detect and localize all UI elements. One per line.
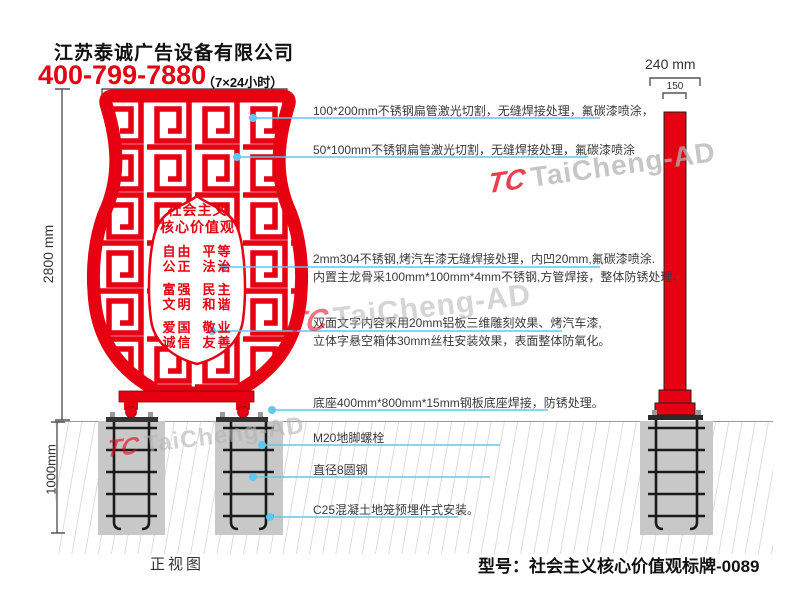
dim-150: 150 [663, 81, 687, 92]
sign-title-line1: 社会主义 [150, 202, 245, 219]
annotation-anchor-bolt: M20地脚螺栓 [313, 430, 384, 446]
phone-note: （7×24小时） [202, 72, 283, 91]
model-number: 型号：社会主义核心价值观标牌-0089 [478, 552, 759, 577]
annotation-mid-tube: 50*100mm不锈钢扁管激光切割，无缝焊接处理，氟碳漆喷涂 [313, 142, 635, 158]
annotation-steel-body-line2: 内置主龙骨采100mm*100mm*4mm不锈钢,方管焊接，整体防锈处理。 [313, 269, 684, 285]
vase-stand [119, 391, 254, 418]
phone-number: 400-799-7880 [38, 60, 206, 91]
sign-title-line2: 核心价值观 [150, 219, 245, 236]
core-values: 自由平等 公正法治 富强民主 文明和谐 爱国敬业 诚信友善 [150, 244, 245, 350]
annotation-base-plate: 底座400mm*800mm*15mm钢板底座焊接，防锈处理。 [313, 395, 604, 411]
annotation-rebar: 直径8圆钢 [313, 462, 368, 478]
annotation-text-panel-line2: 立体字悬空箱体30mm丝柱安装效果，表面整体防氧化。 [313, 333, 610, 349]
dim-240mm: 240 mm [645, 56, 696, 72]
annotation-text-panel-line1: 双面文字内容采用20mm铝板三维雕刻效果、烤汽车漆, [313, 315, 602, 331]
dim-1000mm: 1000mm [44, 441, 59, 499]
side-view [640, 112, 713, 535]
technical-drawing-page: { "header": { "company": "江苏泰诚广告设备有限公司",… [0, 0, 800, 600]
front-footings [98, 412, 283, 535]
front-view-label: 正视图 [150, 553, 204, 574]
dim-2800mm: 2800 mm [40, 224, 56, 284]
sign-panel-text: 社会主义 核心价值观 自由平等 公正法治 富强民主 文明和谐 爱国敬业 诚信友善 [150, 202, 245, 350]
annotation-concrete: C25混凝土地笼预埋件式安装。 [313, 502, 479, 518]
annotation-steel-body-line1: 2mm304不锈钢,烤汽车漆无缝焊接处理，内凹20mm,氟碳漆喷涂. [313, 251, 655, 267]
annotation-top-tube: 100*200mm不锈钢扁管激光切割，无缝焊接处理，氟碳漆喷涂， [313, 103, 654, 119]
